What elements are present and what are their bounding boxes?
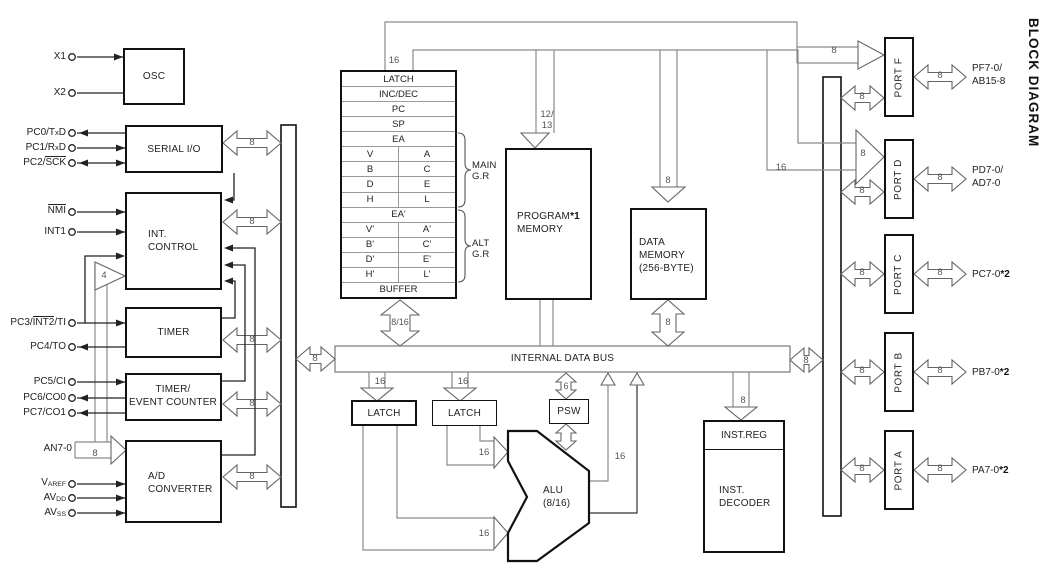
arrowhead	[79, 395, 88, 402]
bus-width-label: 16	[384, 55, 404, 66]
arrowhead	[224, 245, 233, 252]
latch-a-block: LATCH	[351, 400, 417, 426]
pin-label-an7-0: AN7-0	[0, 443, 72, 455]
port-d-block: PORT D	[884, 139, 914, 219]
arrowhead	[114, 54, 123, 61]
pin-terminal	[69, 395, 76, 402]
page-title: BLOCK DIAGRAM	[1026, 18, 1041, 147]
arrowhead	[224, 278, 233, 285]
pin-terminal	[69, 145, 76, 152]
latch-b-block: LATCH	[432, 400, 497, 426]
pin-label-pc5-ci: PC5/CI	[0, 376, 66, 388]
alu-out-2	[589, 385, 637, 513]
bus-width-label: 4	[97, 270, 111, 281]
bus-width-label: 8	[854, 267, 870, 278]
left-peripheral-bus	[281, 125, 296, 507]
head-pgm-in	[521, 133, 549, 148]
pin-terminal	[69, 344, 76, 351]
bus-width-label: 8	[244, 334, 260, 345]
pin-label-x2: X2	[0, 87, 66, 99]
register-row: EA'	[342, 207, 455, 222]
register-row: HL	[342, 192, 455, 207]
pin-terminal	[69, 379, 76, 386]
register-row: EA	[342, 131, 455, 146]
addr-line-16	[385, 22, 797, 70]
pin-terminal	[69, 160, 76, 167]
bus-width-label: 8	[855, 148, 871, 159]
latcha-alu-2	[480, 426, 494, 441]
pin-terminal	[69, 410, 76, 417]
pin-label-pc6-co0: PC6/CO0	[0, 392, 66, 404]
bus-width-label: 16	[453, 376, 473, 387]
arrowhead	[116, 481, 125, 488]
register-row: VA	[342, 146, 455, 161]
pin-label-nmi: NMI	[0, 205, 66, 217]
bus-width-label: 8	[798, 355, 814, 366]
alu-label: ALU(8/16)	[543, 484, 570, 510]
arrow-psw-alu	[556, 424, 576, 450]
block-diagram-page: X1 X2 PC0/TxD PC1/RxD PC2/SCK NMI INT1 P…	[0, 0, 1056, 576]
latcha-alu-1	[447, 426, 494, 465]
arrowhead	[79, 410, 88, 417]
pin-terminal	[69, 90, 76, 97]
arrowhead	[79, 130, 88, 137]
bus-width-label: 16	[474, 528, 494, 539]
main-gr-brace	[458, 133, 471, 207]
register-row: BC	[342, 161, 455, 176]
arrowhead	[116, 145, 125, 152]
osc-block: OSC	[123, 48, 185, 105]
int-control-block: INT.CONTROL	[125, 192, 222, 290]
pin-label-pc1-rxd: PC1/RxD	[0, 142, 66, 154]
register-row: D'E'	[342, 252, 455, 267]
head-alu-out-1	[601, 373, 615, 385]
head-instreg-in	[725, 407, 757, 420]
register-row: H'L'	[342, 267, 455, 282]
bus-width-label: 8	[854, 463, 870, 474]
serial-int-line	[228, 173, 234, 200]
pin-label-pd7-0: PD7-0/AD7-0	[972, 164, 1003, 190]
pin-label-pb7-0: PB7-0*2	[972, 366, 1009, 379]
head-dm-in	[652, 187, 685, 202]
pin-terminal	[69, 320, 76, 327]
bus-width-label: 6	[560, 381, 572, 392]
port-c-block: PORT C	[884, 234, 914, 314]
pin-label-avss: AVSS	[0, 507, 66, 521]
head-an-in	[111, 436, 126, 464]
bus-width-label: 16	[474, 447, 494, 458]
pin-label-pa7-0: PA7-0*2	[972, 464, 1009, 477]
bus-width-label: 8	[244, 398, 260, 409]
head-portf-in	[858, 41, 884, 69]
arrowhead	[79, 344, 88, 351]
head-alu-in-b	[494, 517, 508, 549]
data-memory-block: DATAMEMORY(256-BYTE)	[630, 208, 707, 300]
arrowhead	[116, 253, 125, 260]
port-a-block: PORT A	[884, 430, 914, 510]
timer-event-counter-block: TIMER/EVENT COUNTER	[125, 373, 222, 421]
pin-terminal	[69, 481, 76, 488]
pin-terminal	[69, 510, 76, 517]
portd-feed	[767, 50, 856, 170]
bus-width-label: 8	[826, 45, 842, 56]
register-row: DE	[342, 176, 455, 191]
bus-width-label: 13	[537, 120, 557, 131]
register-row: LATCH	[342, 72, 455, 86]
bus-width-label: 8	[307, 353, 323, 364]
arrowhead	[116, 209, 125, 216]
pin-label-pc2-sck: PC2/SCK	[0, 157, 66, 169]
psw-block: PSW	[549, 399, 589, 424]
program-memory-block: PROGRAM*1MEMORY	[505, 148, 592, 300]
pin-label-int1: INT1	[0, 226, 66, 238]
pin-label-pc7-co1: PC7/CO1	[0, 407, 66, 419]
arrowhead	[116, 160, 125, 167]
bus-width-label: 8	[244, 216, 260, 227]
pin-terminal	[69, 54, 76, 61]
register-row: INC/DEC	[342, 86, 455, 101]
adc-int-line	[222, 248, 255, 455]
pin-terminal	[69, 209, 76, 216]
bus-width-label: 16	[609, 451, 631, 462]
inst-decoder-block: INST.REG INST.DECODER	[703, 420, 785, 553]
port-f-block: PORT F	[884, 37, 914, 117]
pin-label-pc4-to: PC4/TO	[0, 341, 66, 353]
serial-io-block: SERIAL I/O	[125, 125, 223, 173]
register-row: BUFFER	[342, 282, 455, 297]
register-row: SP	[342, 116, 455, 131]
register-row: B'C'	[342, 237, 455, 252]
bus-width-label: 8	[244, 471, 260, 482]
pin-label-x1: X1	[0, 51, 66, 63]
arrowhead	[116, 495, 125, 502]
bus-width-label: 12/	[537, 109, 557, 120]
port-b-block: PORT B	[884, 332, 914, 412]
bus-width-label: 8	[932, 70, 948, 81]
arrowhead	[116, 320, 125, 327]
alu-out-1	[589, 385, 608, 481]
tec-int-line	[222, 265, 245, 381]
bus-width-label: 8	[854, 365, 870, 376]
bus-width-label: 8	[932, 172, 948, 183]
internal-data-bus: INTERNAL DATA BUS	[335, 346, 790, 372]
bus-width-label: 8	[88, 448, 102, 459]
arrowhead	[224, 262, 233, 269]
bus-width-label: 8	[932, 463, 948, 474]
pin-label-pf7-0: PF7-0/AB15-8	[972, 62, 1005, 88]
register-file: LATCH INC/DEC PC SP EA VA BC DE HL EA' V…	[340, 70, 457, 299]
bus-width-label: 8	[932, 365, 948, 376]
bus-width-label: 16	[771, 162, 791, 173]
inst-reg-section: INST.REG	[705, 422, 783, 450]
ad-converter-block: A/DCONVERTER	[125, 440, 222, 523]
head-alu-in-a	[494, 437, 508, 468]
bus-width-label: 16	[370, 376, 390, 387]
arrowhead	[116, 379, 125, 386]
pin-terminal	[69, 130, 76, 137]
bus-width-label: 8	[661, 175, 675, 186]
head-alu-out-2	[630, 373, 644, 385]
register-row: PC	[342, 101, 455, 116]
arrowhead	[116, 229, 125, 236]
pin-label-pc3-int2-ti: PC3/INT2/TI	[0, 317, 66, 329]
bus-width-label: 8	[854, 185, 870, 196]
timer-int-line	[222, 281, 235, 318]
pin-label-pc0-txd: PC0/TxD	[0, 127, 66, 139]
data-line	[413, 50, 856, 143]
bus-width-label: 8	[736, 395, 750, 406]
bus-width-label: 8	[244, 137, 260, 148]
bus-width-label: 8	[660, 317, 676, 328]
arrowhead	[79, 160, 88, 167]
alt-gr-brace	[458, 210, 471, 282]
pin-label-avdd: AVDD	[0, 492, 66, 506]
alt-gr-label: ALTG.R	[472, 238, 490, 260]
pin-terminal	[69, 229, 76, 236]
pin-label-pc7-0: PC7-0*2	[972, 268, 1010, 281]
arrowhead	[224, 197, 233, 204]
arrowhead	[116, 510, 125, 517]
pin-label-varef: VAREF	[0, 477, 66, 491]
register-row: V'A'	[342, 222, 455, 237]
timer-block: TIMER	[125, 307, 222, 358]
pin-terminal	[69, 495, 76, 502]
bus-width-label: 8/16	[379, 317, 421, 328]
main-gr-label: MAING.R	[472, 160, 497, 182]
bus-width-label: 8	[932, 267, 948, 278]
bus-width-label: 8	[854, 91, 870, 102]
